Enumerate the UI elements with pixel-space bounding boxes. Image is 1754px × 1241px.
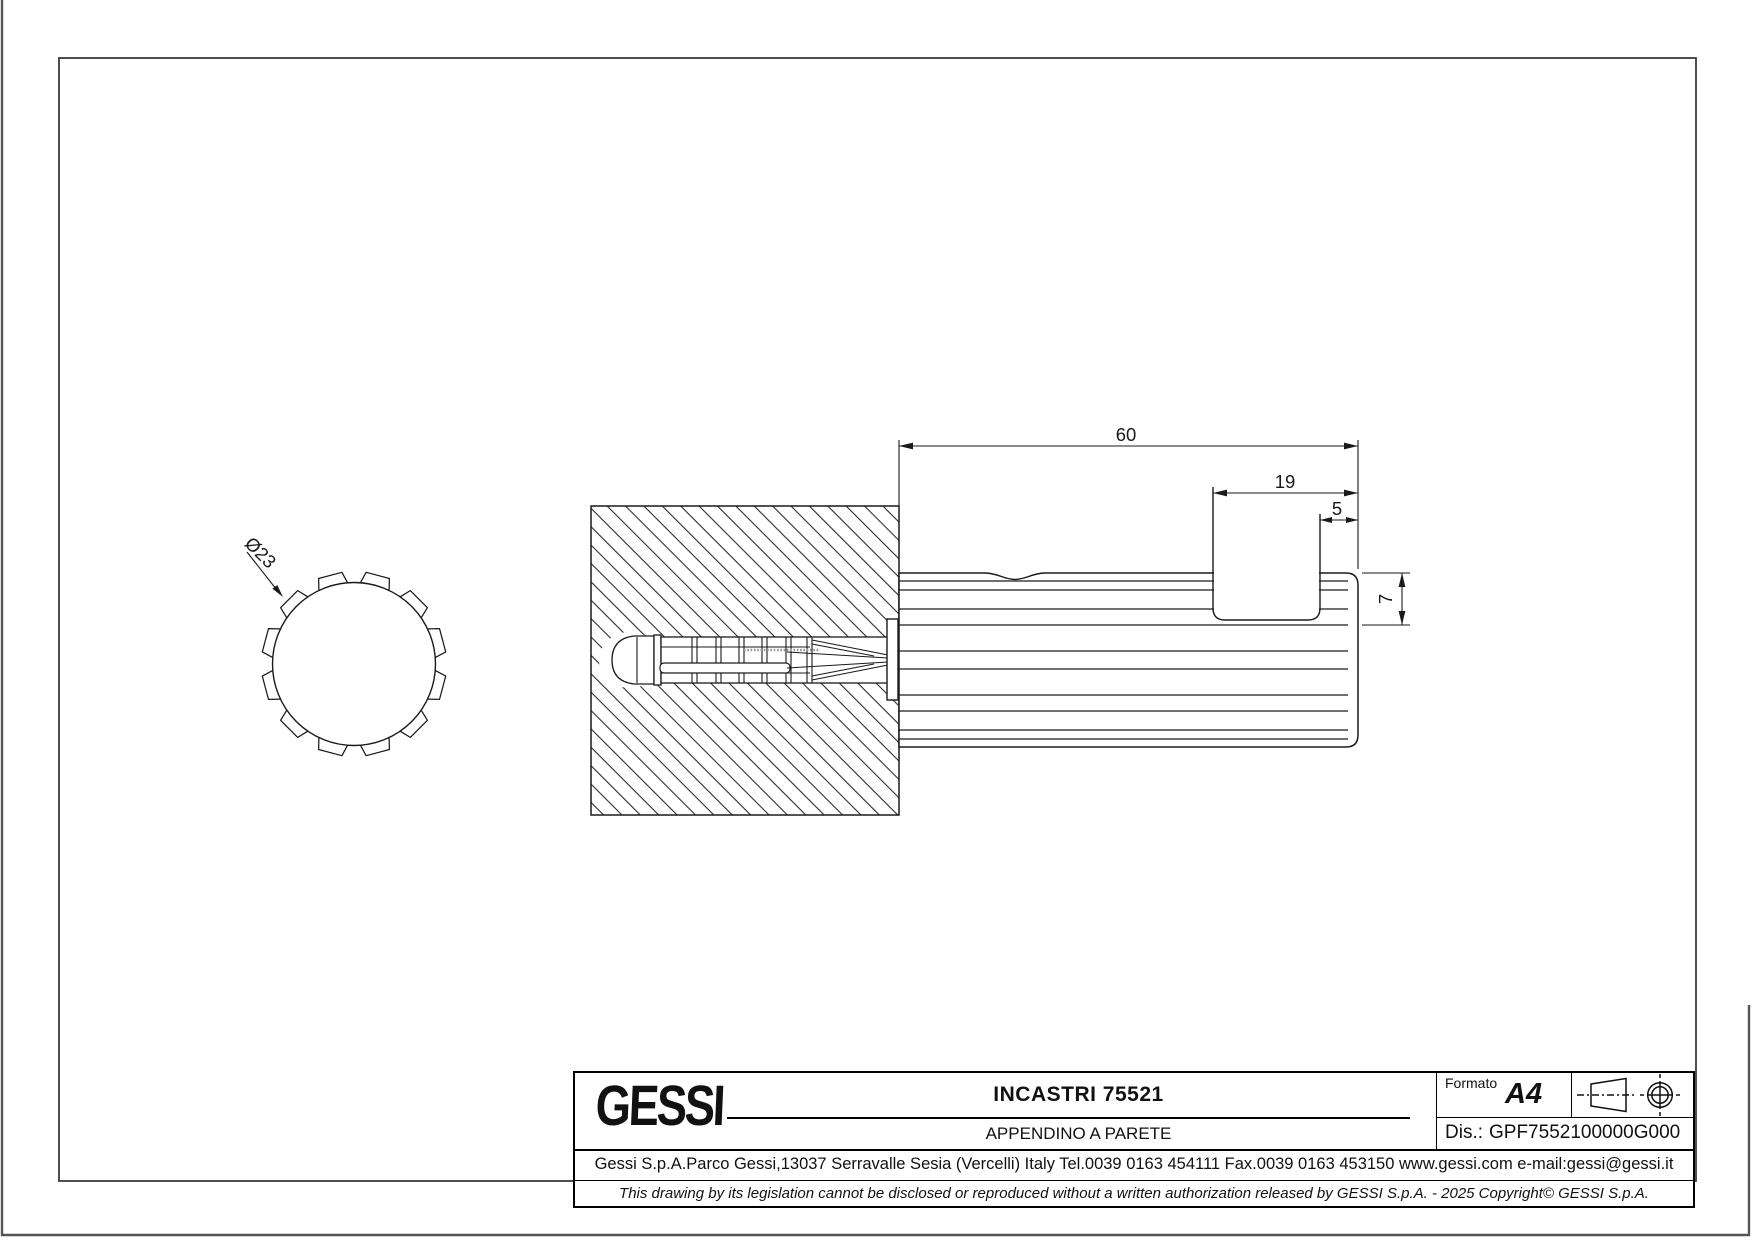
- circle-tab: [262, 629, 280, 658]
- circle-tab: [360, 738, 389, 756]
- dowel-tip: [612, 636, 654, 684]
- circle-tab: [319, 572, 348, 590]
- dim-label-7: 7: [1375, 594, 1396, 604]
- circle-tab: [262, 670, 280, 699]
- drawing-subtitle: APPENDINO A PARETE: [720, 1124, 1437, 1144]
- hook-outline-circle: [273, 583, 436, 746]
- circle-tab: [281, 710, 308, 737]
- legal-notice-line: This drawing by its legislation cannot b…: [575, 1181, 1693, 1205]
- circle-tab: [360, 572, 389, 590]
- drawing-number-label: Dis.:: [1445, 1122, 1483, 1144]
- dowel-body: [661, 637, 889, 683]
- dim-label-19: 19: [1275, 471, 1296, 492]
- format-cell: Formato A4: [1437, 1073, 1572, 1117]
- circle-tab: [281, 591, 308, 618]
- circle-tab: [319, 738, 348, 756]
- dim-label-5: 5: [1332, 498, 1342, 519]
- front-view-circle: [262, 572, 445, 755]
- format-value: A4: [1505, 1078, 1542, 1111]
- dimension-60: [899, 440, 1358, 569]
- circle-tab: [400, 710, 427, 737]
- technical-drawing-canvas: 60 19 5 7 Ø23: [0, 0, 1754, 1241]
- first-angle-projection-icon: [1574, 1073, 1692, 1117]
- dim-label-60: 60: [1116, 424, 1137, 445]
- circle-tab: [428, 629, 446, 658]
- dim-label-diameter: Ø23: [241, 533, 281, 573]
- circle-tab: [428, 670, 446, 699]
- title-block: GESSI INCASTRI 75521 APPENDINO A PARETE …: [573, 1071, 1695, 1208]
- drawing-title: INCASTRI 75521: [720, 1083, 1437, 1107]
- circle-tabs: [262, 572, 445, 755]
- drawing-number-value: GPF7552100000G000: [1489, 1122, 1680, 1144]
- title-divider: [727, 1117, 1410, 1119]
- slot-fill: [1214, 566, 1319, 619]
- dowel-flange: [887, 619, 898, 700]
- circle-tab: [400, 591, 427, 618]
- side-view-body: [899, 487, 1358, 747]
- drawing-sheet: 60 19 5 7 Ø23 GESSI INCASTRI 75521 APPEN…: [0, 0, 1754, 1241]
- projection-symbol-cell: [1572, 1073, 1693, 1117]
- dowel-wing: [660, 663, 790, 673]
- title-area: INCASTRI 75521 APPENDINO A PARETE: [720, 1073, 1437, 1149]
- company-address-line: Gessi S.p.A.Parco Gessi,13037 Serravalle…: [575, 1150, 1693, 1179]
- format-label: Formato: [1445, 1075, 1497, 1091]
- drawing-number-cell: Dis.: GPF7552100000G000: [1437, 1118, 1693, 1148]
- dowel-collar: [654, 635, 661, 685]
- gessi-logo: GESSI: [594, 1075, 724, 1137]
